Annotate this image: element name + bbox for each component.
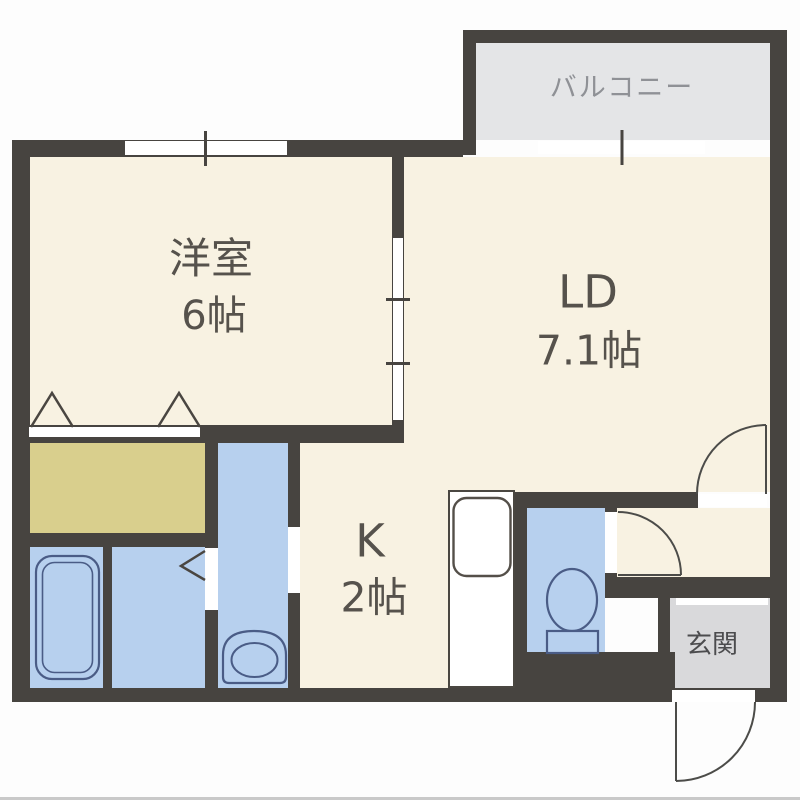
label-living-dining-size: 7.1帖: [536, 331, 642, 372]
bathtub-icon: [36, 556, 99, 679]
label-balcony: バルコニー: [550, 75, 694, 102]
closet-door-triangle-icon: [31, 393, 73, 427]
label-kitchen-size: 2帖: [340, 578, 407, 619]
plan-symbols: [0, 0, 800, 800]
kitchen-sink-icon: [454, 498, 511, 576]
door-swing-toilet: [618, 512, 681, 575]
label-western-room-size: 6帖: [181, 296, 246, 336]
door-swing-ld-hall: [697, 425, 766, 494]
label-living-dining: LD: [558, 270, 618, 315]
floor-plan: 洋室 6帖 LD 7.1帖 K 2帖 バルコニー 玄関: [0, 0, 800, 800]
label-western-room: 洋室: [169, 238, 253, 280]
laundry-door-chevron-icon: [181, 551, 205, 580]
washbasin-icon: [223, 631, 286, 683]
label-kitchen: K: [355, 519, 385, 564]
door-swing-entrance: [676, 702, 755, 781]
toilet-icon: [547, 569, 598, 653]
label-entrance: 玄関: [686, 632, 738, 658]
closet-door-triangle-icon: [158, 393, 200, 427]
sliding-door-ticks: [386, 300, 410, 364]
